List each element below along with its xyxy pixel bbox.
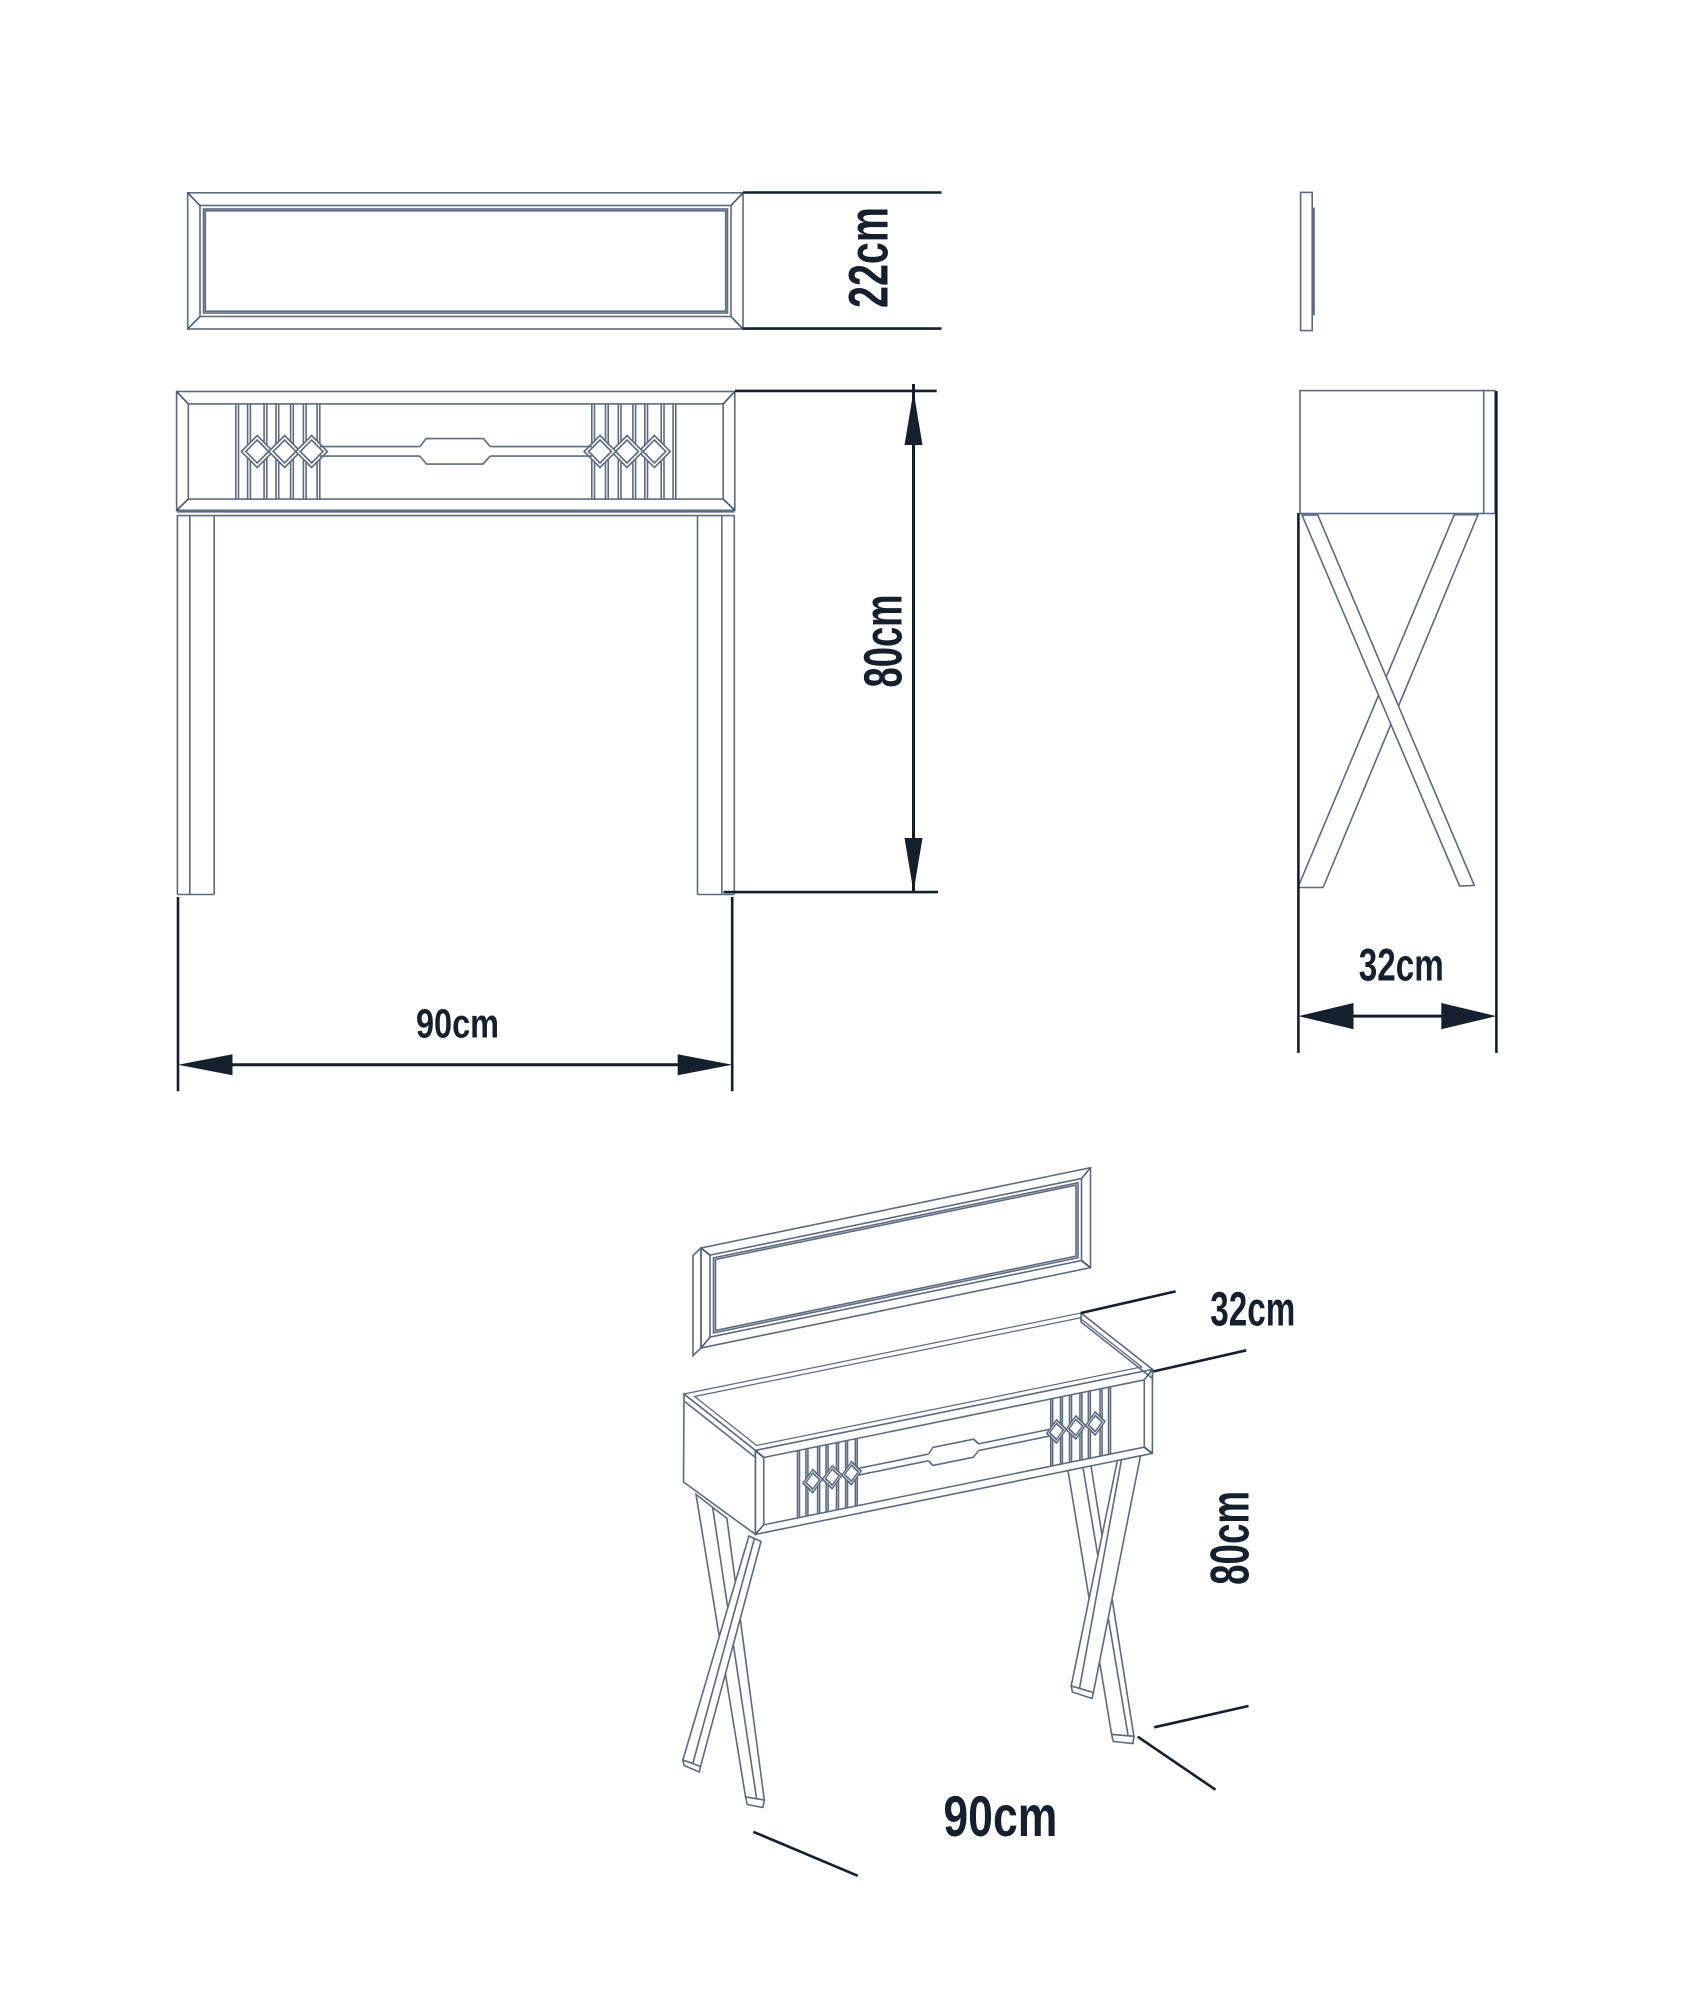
svg-text:32cm: 32cm bbox=[1359, 940, 1444, 991]
svg-text:90cm: 90cm bbox=[416, 1001, 499, 1047]
svg-text:22cm: 22cm bbox=[837, 207, 899, 308]
svg-text:90cm: 90cm bbox=[943, 1785, 1057, 1849]
svg-text:80cm: 80cm bbox=[1200, 1491, 1261, 1585]
svg-text:32cm: 32cm bbox=[1210, 1284, 1295, 1337]
svg-text:80cm: 80cm bbox=[854, 595, 914, 688]
